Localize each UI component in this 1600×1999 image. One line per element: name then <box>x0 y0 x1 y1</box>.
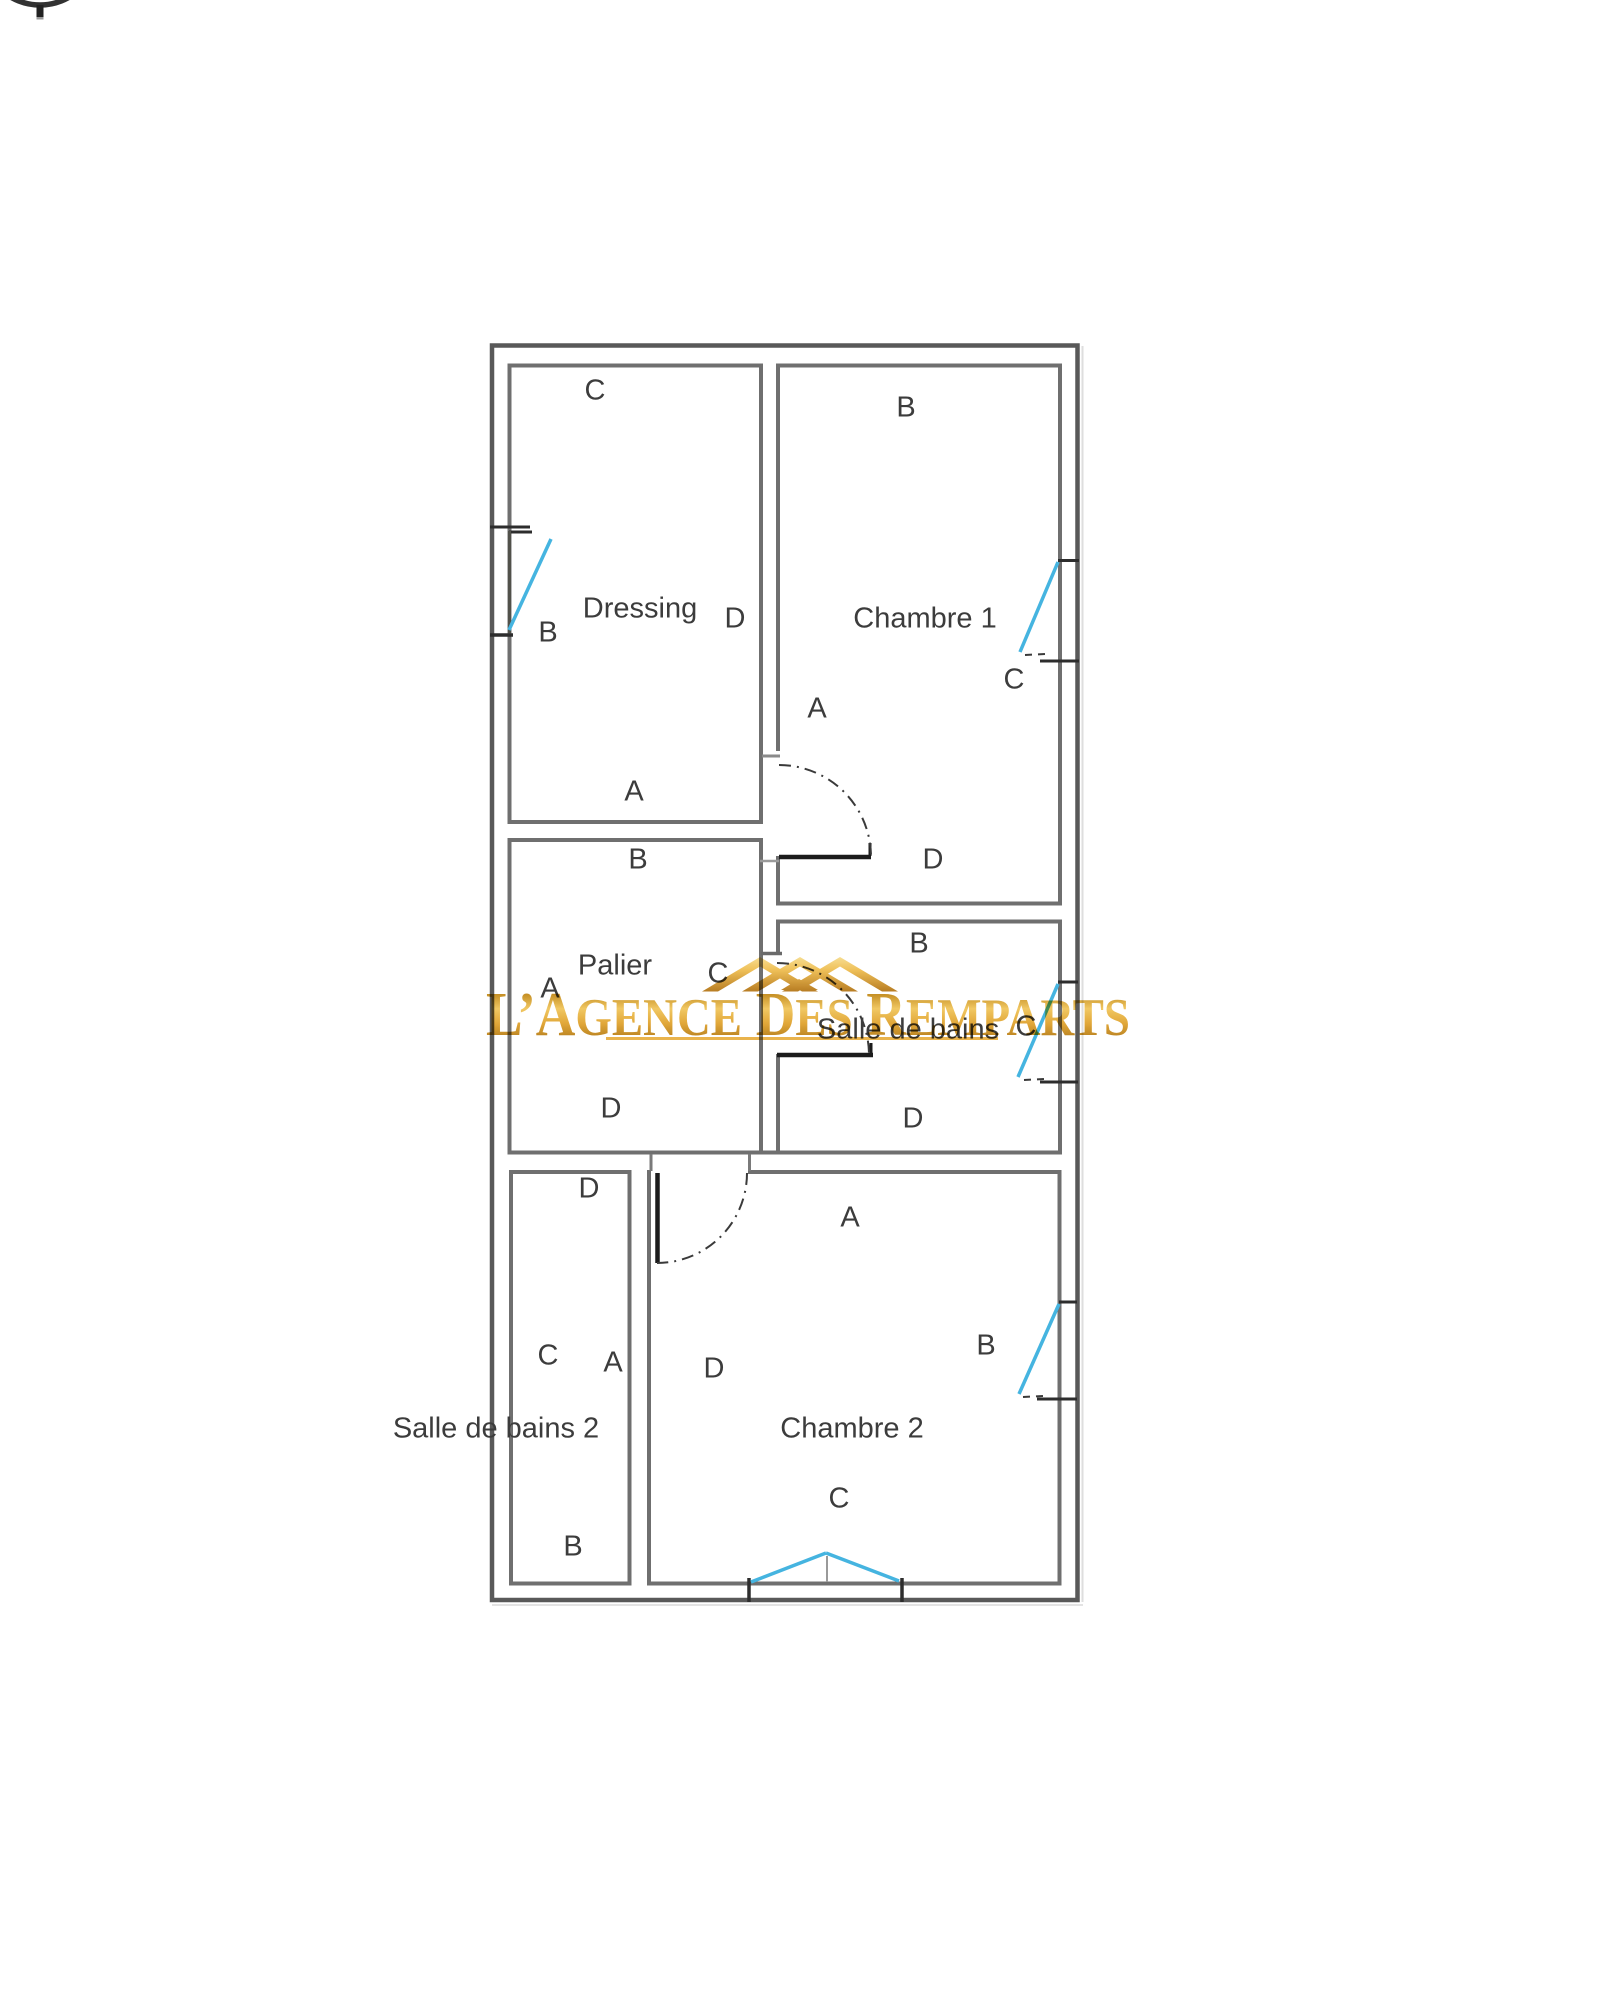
svg-text:D: D <box>725 603 746 635</box>
svg-text:Chambre 2: Chambre 2 <box>780 1413 923 1445</box>
svg-text:C: C <box>538 1340 559 1372</box>
svg-text:A: A <box>840 1202 860 1234</box>
svg-text:D: D <box>903 1103 924 1135</box>
svg-text:Salle de bains 2: Salle de bains 2 <box>393 1413 599 1445</box>
svg-text:B: B <box>909 928 928 960</box>
svg-text:Dressing: Dressing <box>583 593 697 625</box>
svg-text:D: D <box>601 1093 622 1125</box>
svg-text:A: A <box>603 1347 623 1379</box>
svg-text:C: C <box>829 1483 850 1515</box>
svg-text:D: D <box>579 1173 600 1205</box>
svg-text:B: B <box>628 844 647 876</box>
svg-text:A: A <box>624 776 644 808</box>
svg-text:B: B <box>976 1330 995 1362</box>
svg-text:D: D <box>923 844 944 876</box>
svg-text:C: C <box>585 375 606 407</box>
svg-text:D: D <box>704 1353 725 1385</box>
svg-text:Palier: Palier <box>578 950 652 982</box>
svg-text:B: B <box>563 1531 582 1563</box>
svg-text:B: B <box>538 617 557 649</box>
svg-text:B: B <box>896 392 915 424</box>
svg-text:Chambre 1: Chambre 1 <box>853 603 996 635</box>
svg-text:A: A <box>807 693 827 725</box>
svg-text:C: C <box>1004 664 1025 696</box>
